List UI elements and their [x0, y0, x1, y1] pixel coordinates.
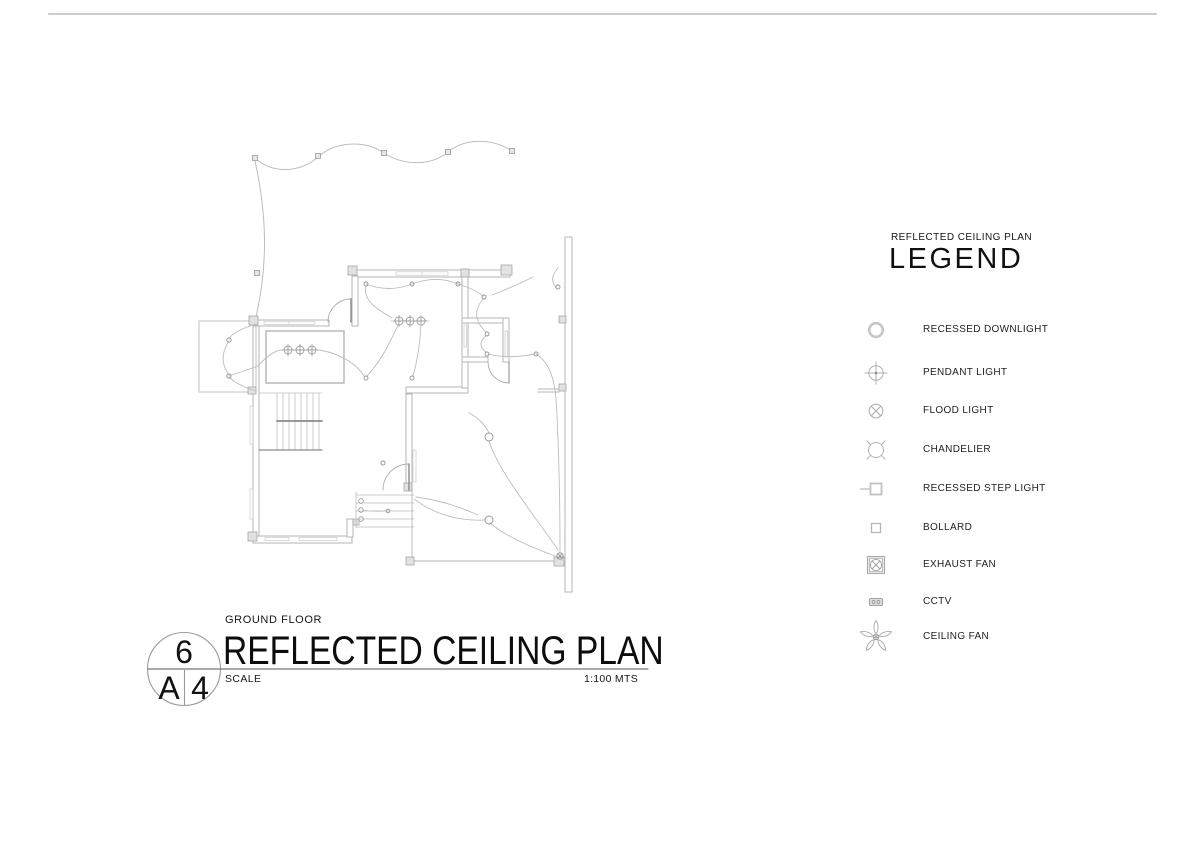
ceiling-fan-icon	[858, 619, 894, 655]
recessed-step-light-icon	[858, 471, 894, 507]
plan-porch-leaders	[223, 324, 256, 391]
sheet-number: 4	[186, 672, 214, 704]
legend-item-recessed-downlight: RECESSED DOWNLIGHT	[858, 312, 1048, 348]
legend-item-label: EXHAUST FAN	[923, 560, 996, 570]
legend-item-pendant-light: PENDANT LIGHT	[858, 355, 1007, 391]
legend-heading: LEGEND	[889, 245, 1023, 274]
recessed-downlight-icon	[858, 312, 894, 348]
page-title: REFLECTED CEILING PLAN	[223, 631, 664, 671]
bollard-icon	[858, 510, 894, 546]
legend-item-flood-light: FLOOD LIGHT	[858, 393, 994, 429]
legend-item-exhaust-fan: EXHAUST FAN	[858, 547, 996, 583]
legend-item-label: FLOOD LIGHT	[923, 406, 994, 416]
legend-item-recessed-step-light: RECESSED STEP LIGHT	[858, 471, 1046, 507]
drawing-sheet: REFLECTED CEILING PLAN LEGEND RECESSED D…	[0, 0, 1200, 848]
legend-item-label: CEILING FAN	[923, 632, 989, 642]
exhaust-fan-icon	[858, 547, 894, 583]
flood-light-icon	[858, 393, 894, 429]
scale-label: SCALE	[225, 674, 261, 685]
cctv-icon	[858, 584, 894, 620]
legend-item-label: RECESSED DOWNLIGHT	[923, 325, 1048, 335]
floor-plan-drawing	[0, 0, 1200, 848]
plan-leader-lines	[229, 268, 563, 559]
scale-value: 1:100 MTS	[560, 674, 638, 685]
plan-ceiling-feature	[266, 331, 344, 383]
legend-item-cctv: CCTV	[858, 584, 952, 620]
sheet-letter: A	[155, 672, 183, 704]
drawing-number: 6	[170, 636, 198, 668]
legend-item-label: BOLLARD	[923, 523, 972, 533]
legend-item-label: CHANDELIER	[923, 445, 991, 455]
legend-subtitle: REFLECTED CEILING PLAN	[891, 233, 1032, 243]
legend-item-bollard: BOLLARD	[858, 510, 972, 546]
legend-item-ceiling-fan: CEILING FAN	[858, 619, 989, 655]
legend-item-label: CCTV	[923, 597, 952, 607]
chandelier-icon	[858, 432, 894, 468]
legend-item-chandelier: CHANDELIER	[858, 432, 991, 468]
legend-item-label: RECESSED STEP LIGHT	[923, 484, 1046, 494]
pendant-light-icon	[858, 355, 894, 391]
floor-label: GROUND FLOOR	[225, 615, 322, 626]
legend-item-label: PENDANT LIGHT	[923, 368, 1007, 378]
plan-stairs	[259, 393, 322, 450]
